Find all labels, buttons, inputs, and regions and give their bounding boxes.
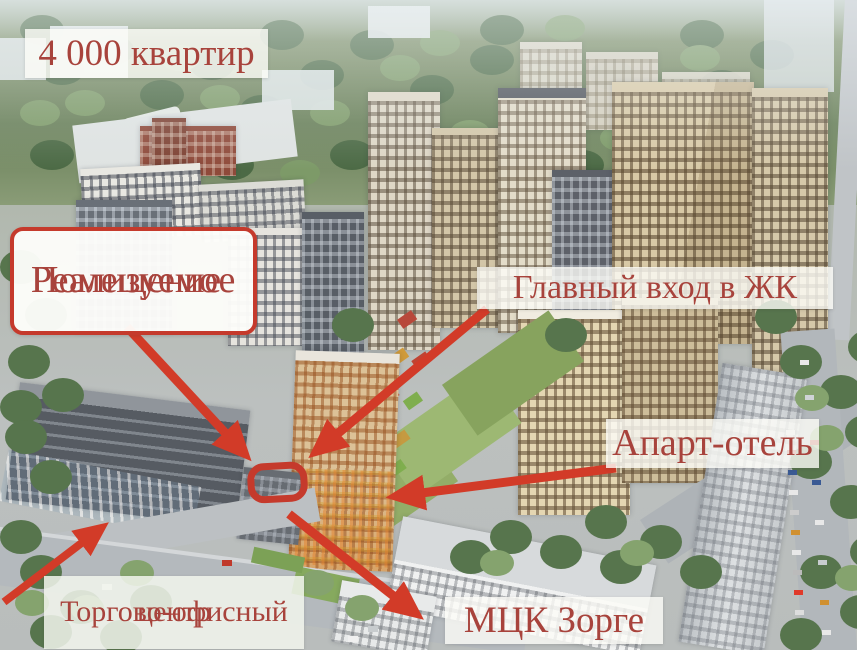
- mck-zorge-text: МЦК Зорге: [464, 601, 644, 641]
- aerial-render: 4 000 квартир Реализуемое Помещение Глав…: [0, 0, 857, 650]
- arrow-main-entrance: [318, 309, 487, 450]
- label-apart-hotel: Апарт-отель: [606, 419, 819, 468]
- arrow-mck-zorge: [289, 514, 414, 612]
- label-apartments-count: 4 000 квартир: [25, 29, 268, 78]
- office-center-line2: центр: [137, 596, 211, 628]
- label-office-center: Торгово-офисный центр: [44, 576, 304, 649]
- property-label-line2: Помещение: [31, 260, 221, 301]
- main-entrance-text: Главный вход в ЖК: [513, 270, 797, 307]
- label-main-entrance: Главный вход в ЖК: [477, 267, 833, 309]
- label-mck-zorge: МЦК Зорге: [445, 597, 663, 644]
- apart-hotel-text: Апарт-отель: [612, 423, 813, 464]
- apartments-count-text: 4 000 квартир: [38, 34, 254, 74]
- arrow-apart-hotel: [398, 468, 616, 496]
- arrow-to-property: [127, 327, 243, 452]
- property-highlight-box: [250, 465, 305, 501]
- label-property-for-sale: Реализуемое Помещение: [10, 227, 257, 335]
